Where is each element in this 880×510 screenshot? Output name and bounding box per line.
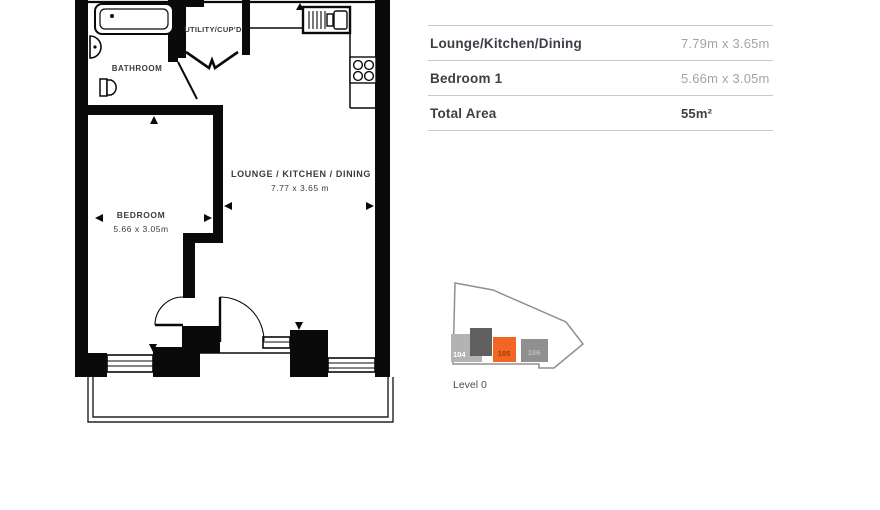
balcony-outline bbox=[88, 377, 393, 422]
utility-label: UTILITY/CUP'D bbox=[184, 25, 242, 34]
right-window bbox=[328, 358, 375, 372]
core-block bbox=[470, 328, 492, 356]
wall-bottom-left bbox=[75, 353, 107, 377]
bedroom-window bbox=[107, 355, 153, 372]
wall-step bbox=[183, 233, 223, 243]
wall-left bbox=[75, 0, 88, 377]
bathroom-fixtures bbox=[90, 4, 173, 96]
bedroom-door bbox=[155, 297, 183, 325]
utility-bifold-doors bbox=[186, 52, 238, 68]
windows bbox=[107, 337, 375, 372]
wall-utility-right bbox=[242, 0, 250, 55]
bedroom-label: BEDROOM bbox=[117, 210, 166, 220]
room-name: Bedroom 1 bbox=[430, 71, 681, 86]
toilet-icon bbox=[100, 79, 116, 96]
table-row: Total Area 55m² bbox=[428, 95, 773, 131]
bathroom-label: BATHROOM bbox=[112, 64, 163, 73]
wall-bottom-bedroom bbox=[153, 347, 200, 377]
lounge-glazing bbox=[263, 337, 290, 348]
bedroom-dimensions-label: 5.66 x 3.05m bbox=[113, 224, 168, 234]
room-dimensions: 7.79m x 3.65m bbox=[681, 36, 771, 51]
bathroom-door bbox=[178, 62, 197, 99]
kitchen-sink-icon bbox=[303, 7, 350, 33]
kitchen-fixtures bbox=[303, 7, 376, 83]
table-row: Bedroom 1 5.66m x 3.05m bbox=[428, 60, 773, 95]
room-name: Lounge/Kitchen/Dining bbox=[430, 36, 681, 51]
level-label: Level 0 bbox=[453, 379, 487, 391]
hob-icon bbox=[350, 57, 376, 83]
floorplan-page: BATHROOM UTILITY/CUP'D LOUNGE / KITCHEN … bbox=[0, 0, 880, 510]
wall-bedroom-lounge bbox=[213, 115, 223, 237]
balcony-door bbox=[220, 297, 264, 342]
floor-plan: BATHROOM UTILITY/CUP'D LOUNGE / KITCHEN … bbox=[0, 0, 430, 450]
arrow-lounge-right bbox=[366, 202, 374, 210]
basin-icon bbox=[90, 36, 101, 58]
arrow-bedroom-up bbox=[150, 116, 158, 124]
unit-105-number: 105 bbox=[498, 349, 511, 358]
arrow-bedroom-right bbox=[204, 214, 212, 222]
lounge-dimensions-label: 7.77 x 3.65 m bbox=[271, 183, 329, 193]
total-area-label: Total Area bbox=[430, 106, 681, 121]
total-area-value: 55m² bbox=[681, 106, 771, 121]
wall-bedroom-top bbox=[75, 105, 223, 115]
unit-106-number: 106 bbox=[528, 348, 541, 357]
arrow-lounge-left bbox=[224, 202, 232, 210]
lounge-label: LOUNGE / KITCHEN / DINING bbox=[231, 169, 371, 179]
doors bbox=[155, 52, 264, 342]
room-dimensions-table: Lounge/Kitchen/Dining 7.79m x 3.65m Bedr… bbox=[428, 25, 773, 131]
wall-right bbox=[375, 0, 390, 377]
wall-bottom-middle-right bbox=[290, 330, 328, 377]
table-row: Lounge/Kitchen/Dining 7.79m x 3.65m bbox=[428, 25, 773, 60]
unit-104-number: 104 bbox=[453, 350, 466, 359]
arrow-lounge-down bbox=[295, 322, 303, 330]
arrow-bedroom-left bbox=[95, 214, 103, 222]
level-indicator: 104 105 106 Level 0 bbox=[430, 270, 600, 395]
room-dimensions: 5.66m x 3.05m bbox=[681, 71, 771, 86]
wall-bedroom-lounge-lower bbox=[183, 243, 195, 298]
bathtub-icon bbox=[95, 4, 173, 34]
